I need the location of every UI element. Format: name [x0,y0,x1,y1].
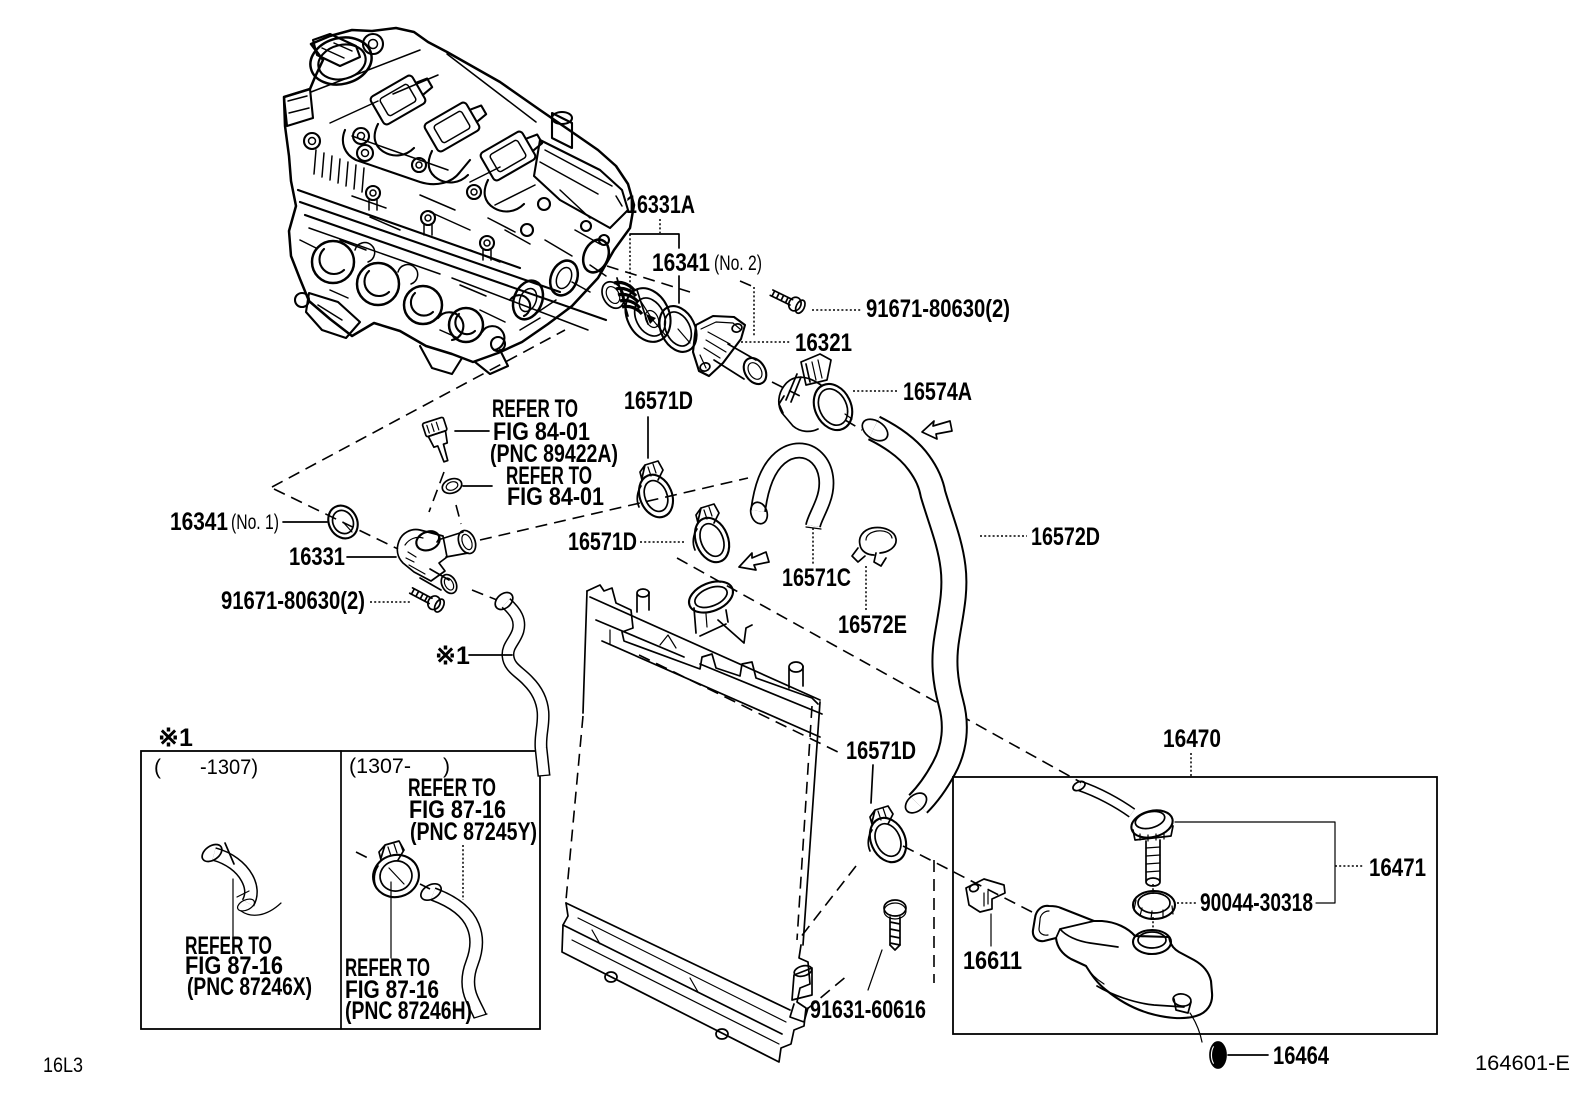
svg-text:16572E: 16572E [838,611,907,639]
svg-text:90044-30318: 90044-30318 [1200,889,1313,917]
svg-text:FIG 84-01: FIG 84-01 [507,483,604,511]
svg-text:16331: 16331 [289,543,345,571]
svg-text:16470: 16470 [1163,725,1221,753]
svg-text:(No. 1): (No. 1) [231,511,279,534]
svg-text:16571D: 16571D [568,528,637,556]
svg-text:91671-80630(2): 91671-80630(2) [866,295,1010,323]
svg-text:16341: 16341 [170,508,228,536]
svg-text:16331A: 16331A [626,191,695,219]
svg-text:(PNC 87246X): (PNC 87246X) [187,973,312,1001]
svg-text:(No. 2): (No. 2) [714,252,762,275]
svg-text:16471: 16471 [1369,854,1426,882]
svg-text:(PNC 87246H): (PNC 87246H) [345,997,472,1025]
svg-text:16571D: 16571D [624,387,693,415]
svg-text:-1307): -1307) [200,756,258,779]
svg-text:16464: 16464 [1273,1042,1329,1070]
svg-text:16321: 16321 [795,329,852,357]
svg-text:16571D: 16571D [846,737,916,765]
svg-text:16341: 16341 [652,249,710,277]
svg-text:16L3: 16L3 [43,1054,83,1077]
svg-text:16611: 16611 [963,947,1022,975]
svg-text:(1307-: (1307- [349,755,411,778]
svg-text:※1: ※1 [158,724,193,752]
svg-text:91671-80630(2): 91671-80630(2) [221,587,365,615]
svg-text:16572D: 16572D [1031,523,1100,551]
svg-text:(PNC 87245Y): (PNC 87245Y) [410,818,537,846]
svg-text:91631-60616: 91631-60616 [810,996,926,1024]
svg-text:(: ( [154,756,161,779]
svg-text:※1: ※1 [435,642,470,670]
svg-text:16574A: 16574A [903,378,972,406]
svg-text:164601-E: 164601-E [1475,1052,1570,1075]
svg-text:16571C: 16571C [782,564,851,592]
